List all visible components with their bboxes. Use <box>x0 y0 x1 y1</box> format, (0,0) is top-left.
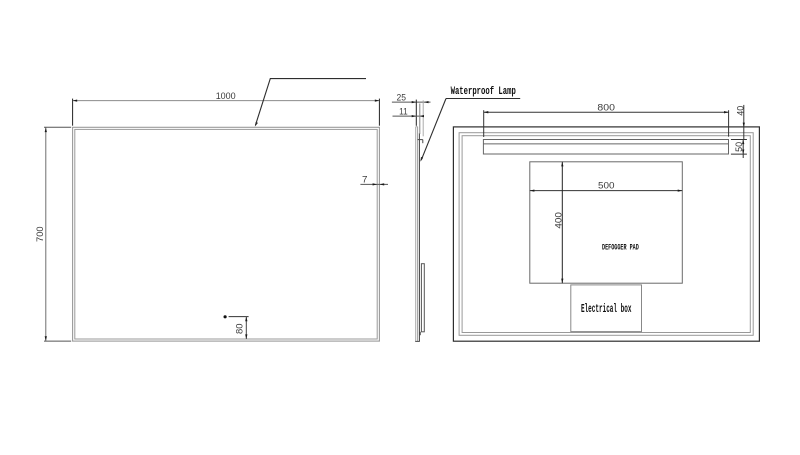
svg-text:7: 7 <box>362 174 368 184</box>
svg-text:800: 800 <box>597 103 615 113</box>
svg-text:40: 40 <box>736 106 746 116</box>
svg-text:700: 700 <box>35 226 45 242</box>
svg-text:Electrical box: Electrical box <box>581 303 632 316</box>
svg-text:11: 11 <box>399 107 408 117</box>
svg-text:DEFOGGER PAD: DEFOGGER PAD <box>602 243 639 252</box>
svg-text:400: 400 <box>554 212 564 229</box>
svg-text:25: 25 <box>397 93 407 103</box>
svg-text:80: 80 <box>235 324 245 335</box>
svg-text:Waterproof Lamp: Waterproof Lamp <box>451 86 516 98</box>
svg-text:1000: 1000 <box>216 91 236 101</box>
svg-text:50: 50 <box>734 142 744 152</box>
svg-text:500: 500 <box>598 181 615 191</box>
